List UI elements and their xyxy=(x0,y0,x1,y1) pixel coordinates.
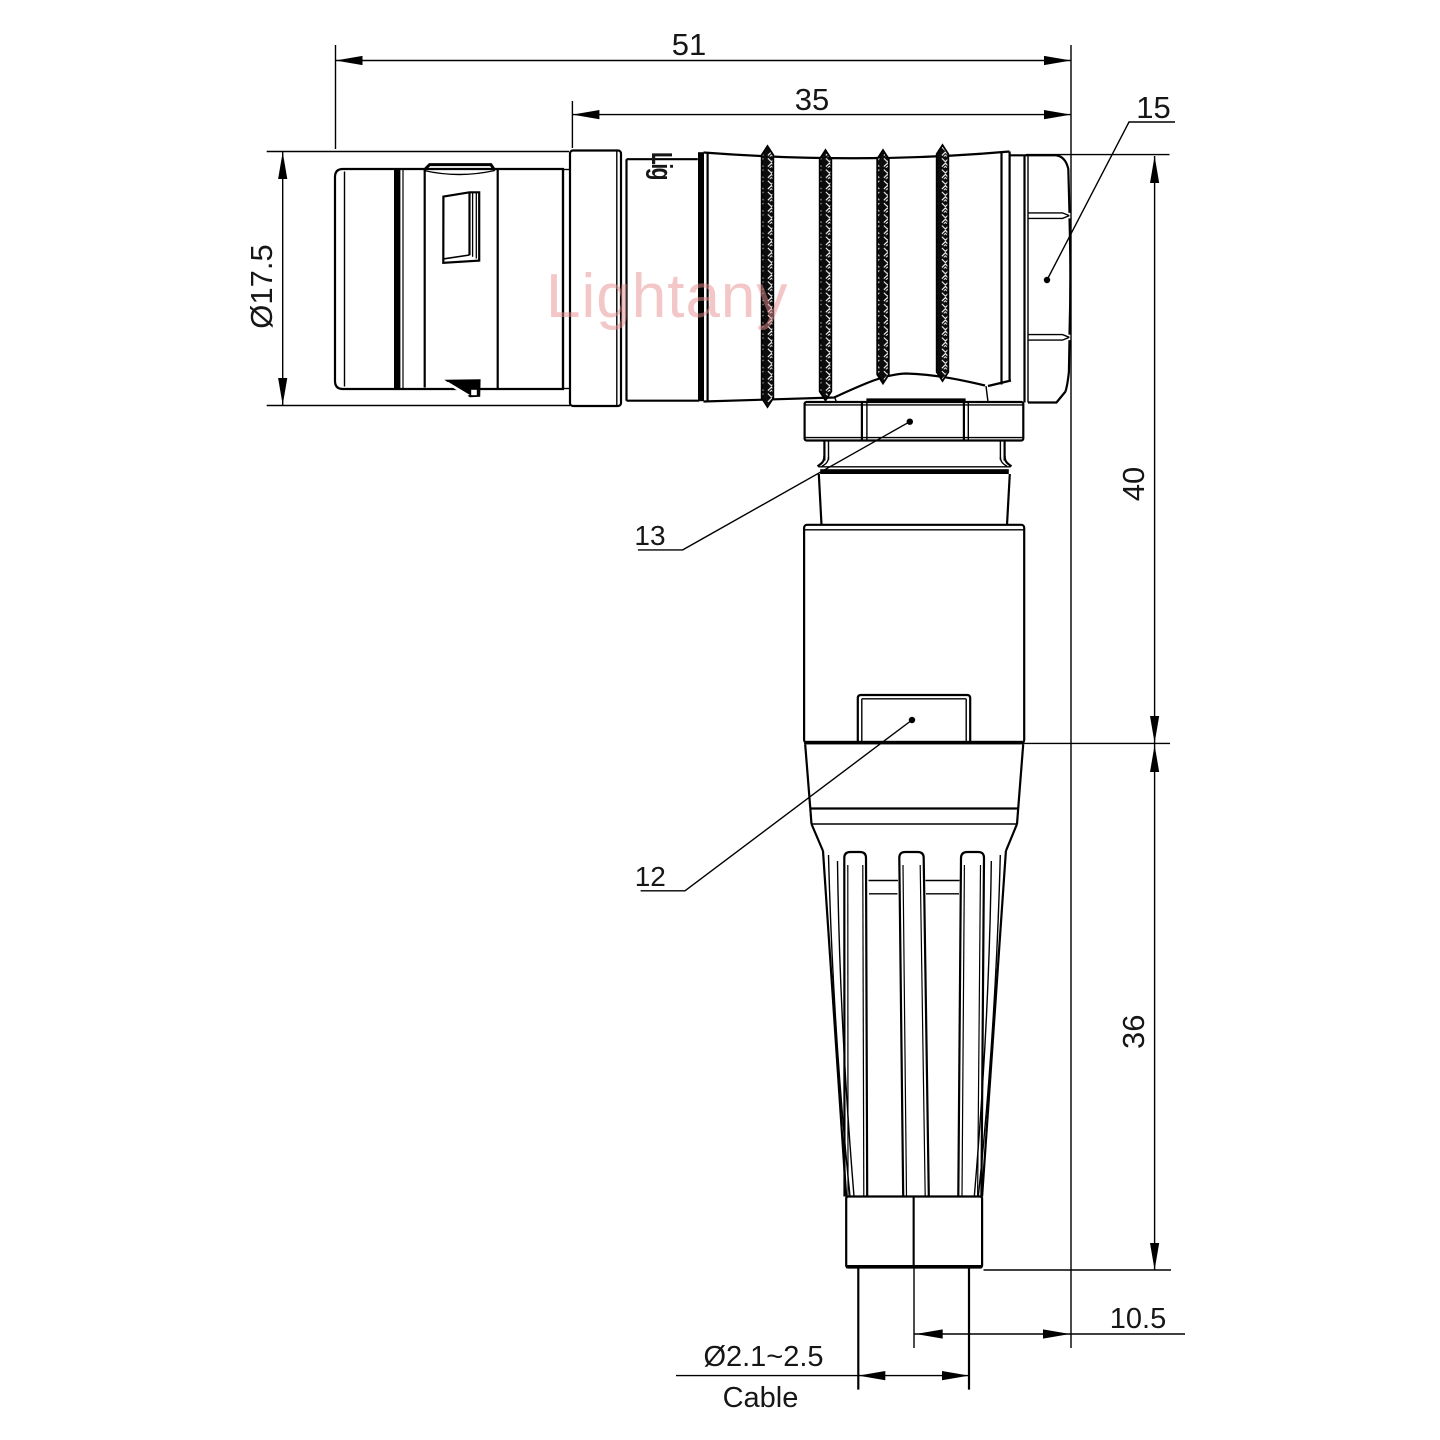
svg-text:40: 40 xyxy=(1116,467,1151,501)
svg-text:51: 51 xyxy=(672,27,706,62)
svg-text:Ø17.5: Ø17.5 xyxy=(244,244,279,328)
svg-text:Lightany: Lightany xyxy=(546,262,788,331)
svg-text:15: 15 xyxy=(1136,90,1170,125)
svg-text:36: 36 xyxy=(1116,1014,1151,1048)
svg-text:10.5: 10.5 xyxy=(1110,1303,1166,1335)
svg-text:Cable: Cable xyxy=(723,1382,799,1414)
svg-text:35: 35 xyxy=(795,82,829,117)
svg-text:Lig: Lig xyxy=(645,152,677,179)
svg-text:Ø2.1~2.5: Ø2.1~2.5 xyxy=(703,1341,823,1373)
svg-text:13: 13 xyxy=(634,520,665,551)
svg-text:12: 12 xyxy=(635,861,666,892)
